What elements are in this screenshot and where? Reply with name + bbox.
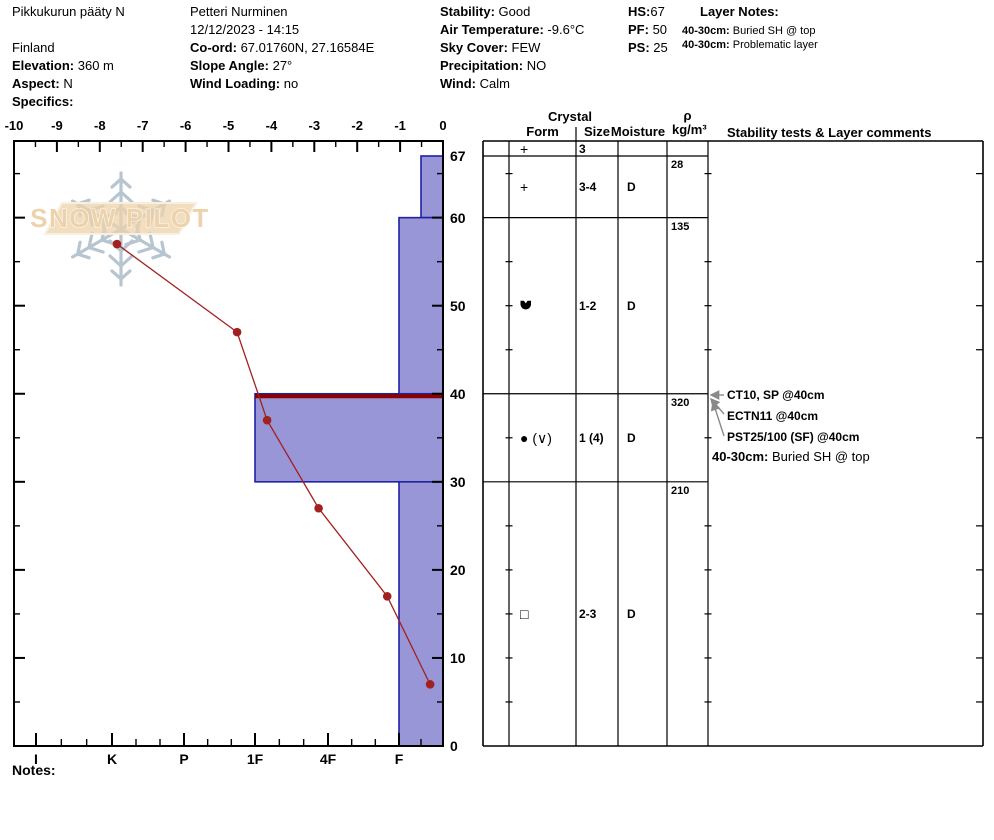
grain-moisture-cell: D (627, 298, 636, 314)
snow-profile-page: Pikkukurun pääty N Finland Elevation: 36… (0, 0, 994, 840)
temp-axis-label: -6 (169, 118, 203, 133)
grain-form-cell: + (520, 141, 528, 157)
density-value: 135 (671, 221, 689, 233)
grain-form-cell: + (520, 179, 528, 195)
hardness-axis-label: P (167, 751, 201, 767)
form-header: Form (509, 124, 576, 139)
stability-test-label: ECTN11 @40cm (727, 409, 818, 423)
height-axis-label: 10 (450, 650, 466, 666)
height-axis-label: 40 (450, 386, 466, 402)
height-axis-label: 0 (450, 738, 458, 754)
height-axis-label: 20 (450, 562, 466, 578)
moisture-header: Moisture (607, 124, 669, 139)
temp-axis-label: 0 (426, 118, 460, 133)
temp-axis-label: -8 (83, 118, 117, 133)
temp-axis-label: -7 (126, 118, 160, 133)
height-axis-label: 60 (450, 210, 466, 226)
crystal-header: Crystal (523, 109, 617, 124)
hardness-axis-label: 1F (238, 751, 272, 767)
grain-moisture-cell: D (627, 430, 636, 446)
hardness-axis-label: F (382, 751, 416, 767)
temp-axis-label: -4 (254, 118, 288, 133)
grain-moisture-cell: D (627, 179, 636, 195)
hardness-axis-label: 4F (311, 751, 345, 767)
temp-axis-label: -3 (297, 118, 331, 133)
height-axis-label: 30 (450, 474, 466, 490)
stability-column-header: Stability tests & Layer comments (727, 125, 931, 140)
density-unit-header: kg/m³ (667, 122, 716, 137)
density-value: 320 (671, 397, 689, 409)
grain-moisture-cell: D (627, 606, 636, 622)
density-value: 28 (671, 159, 683, 171)
grain-size-cell: 3 (579, 141, 586, 157)
grain-form-cell: ● (∨) (520, 430, 552, 446)
stability-test-label: CT10, SP @40cm (727, 388, 825, 402)
stability-layer-comment: 40-30cm: Buried SH @ top (712, 449, 870, 464)
height-axis-label: 67 (450, 148, 466, 164)
grain-form-cell: □ (520, 606, 528, 622)
density-value: 210 (671, 485, 689, 497)
height-axis-label: 50 (450, 298, 466, 314)
grain-size-cell: 3-4 (579, 179, 596, 195)
stability-test-label: PST25/100 (SF) @40cm (727, 430, 859, 444)
temp-axis-label: -1 (383, 118, 417, 133)
temp-axis-label: -5 (212, 118, 246, 133)
temp-axis-label: -10 (0, 118, 31, 133)
grain-size-cell: 1 (4) (579, 430, 604, 446)
notes-label: Notes: (12, 762, 56, 778)
grain-size-cell: 2-3 (579, 606, 596, 622)
temp-axis-label: -9 (40, 118, 74, 133)
temp-axis-label: -2 (340, 118, 374, 133)
grain-size-cell: 1-2 (579, 298, 596, 314)
hardness-axis-label: K (95, 751, 129, 767)
density-header: ρ (667, 108, 708, 123)
